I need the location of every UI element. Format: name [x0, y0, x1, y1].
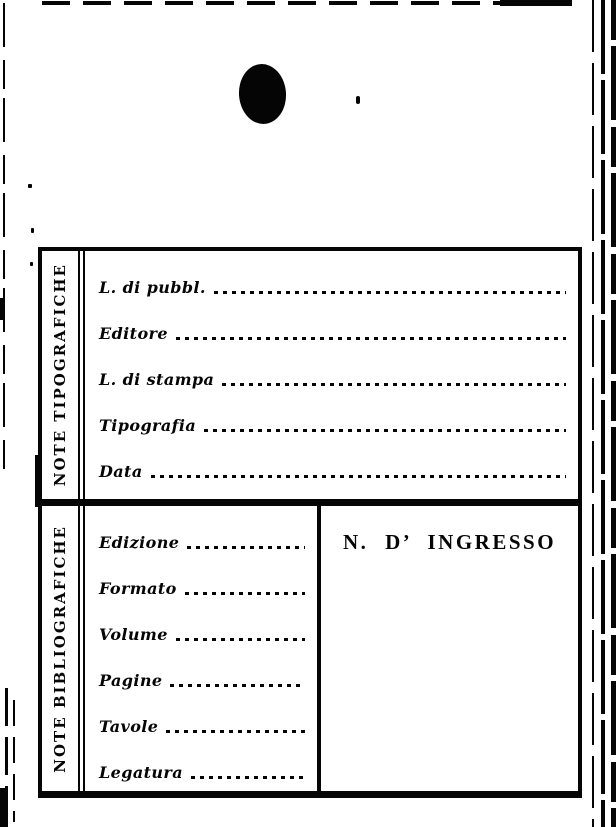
field-label: Data [99, 464, 143, 481]
field-row-tavole: Tavole [99, 690, 307, 736]
write-in-line [222, 383, 566, 386]
section-title-strip: NOTE BIBLIOGRAFICHE [42, 506, 78, 791]
scan-edge-right-outer [611, 0, 616, 827]
field-row-formato: Formato [99, 552, 307, 598]
field-label: Editore [99, 326, 168, 343]
field-label: Pagine [99, 673, 162, 690]
field-label: Legatura [99, 765, 183, 782]
scan-speck [31, 228, 34, 233]
field-row-editore: Editore [99, 297, 568, 343]
scanned-library-card-page: NOTE TIPOGRAFICHE L. di pubbl. Editore L… [0, 0, 616, 827]
scan-blotch-bottom-left [0, 788, 8, 827]
numero-ingresso-cell: N. D’ INGRESSO [321, 506, 578, 791]
scan-edge-top-right [500, 0, 572, 6]
write-in-line [170, 684, 305, 687]
field-row-edizione: Edizione [99, 506, 307, 552]
scan-edge-left [3, 3, 5, 473]
field-row-tipografia: Tipografia [99, 389, 568, 435]
section-note-bibliografiche: NOTE BIBLIOGRAFICHE Edizione Formato Vol… [42, 506, 578, 791]
tipografiche-fields: L. di pubbl. Editore L. di stampa Tipogr… [85, 251, 578, 499]
field-label: Formato [99, 581, 177, 598]
scan-edge-top [42, 1, 570, 5]
field-label: Volume [99, 627, 168, 644]
section-title-strip: NOTE TIPOGRAFICHE [42, 251, 78, 499]
field-row-data: Data [99, 435, 568, 481]
scan-speck [28, 184, 32, 188]
write-in-line [214, 291, 566, 294]
field-label: Tipografia [99, 418, 196, 435]
write-in-line [176, 337, 566, 340]
write-in-line [185, 592, 305, 595]
scan-speck [30, 262, 33, 266]
field-label: Edizione [99, 535, 179, 552]
write-in-line [204, 429, 566, 432]
write-in-line [166, 730, 305, 733]
section-title-vertical: NOTE BIBLIOGRAFICHE [51, 525, 69, 773]
catalog-card-form: NOTE TIPOGRAFICHE L. di pubbl. Editore L… [38, 247, 582, 798]
section-divider [42, 499, 578, 506]
scan-edge-bottom-left-2 [13, 700, 15, 822]
field-label: Tavole [99, 719, 158, 736]
write-in-line [151, 475, 566, 478]
double-rule [78, 506, 85, 791]
scan-edge-right-thin [592, 0, 594, 827]
field-row-l-di-pubbl: L. di pubbl. [99, 251, 568, 297]
scan-speck-near-hole [356, 96, 360, 104]
field-row-legatura: Legatura [99, 736, 307, 782]
field-label: L. di pubbl. [99, 280, 206, 297]
field-row-l-di-stampa: L. di stampa [99, 343, 568, 389]
field-row-pagine: Pagine [99, 644, 307, 690]
field-row-volume: Volume [99, 598, 307, 644]
double-rule [78, 251, 85, 499]
bibliografiche-fields: Edizione Formato Volume Pagine Tavole [85, 506, 317, 791]
section-title-vertical: NOTE TIPOGRAFICHE [51, 263, 69, 486]
scan-edge-right-thick [601, 0, 605, 827]
section-note-tipografiche: NOTE TIPOGRAFICHE L. di pubbl. Editore L… [42, 251, 578, 499]
numero-ingresso-label: N. D’ INGRESSO [343, 530, 556, 555]
write-in-line [191, 776, 305, 779]
write-in-line [187, 546, 305, 549]
field-label: L. di stampa [99, 372, 214, 389]
scan-blotch-left [0, 298, 5, 320]
write-in-line [176, 638, 305, 641]
punch-hole [237, 62, 288, 125]
